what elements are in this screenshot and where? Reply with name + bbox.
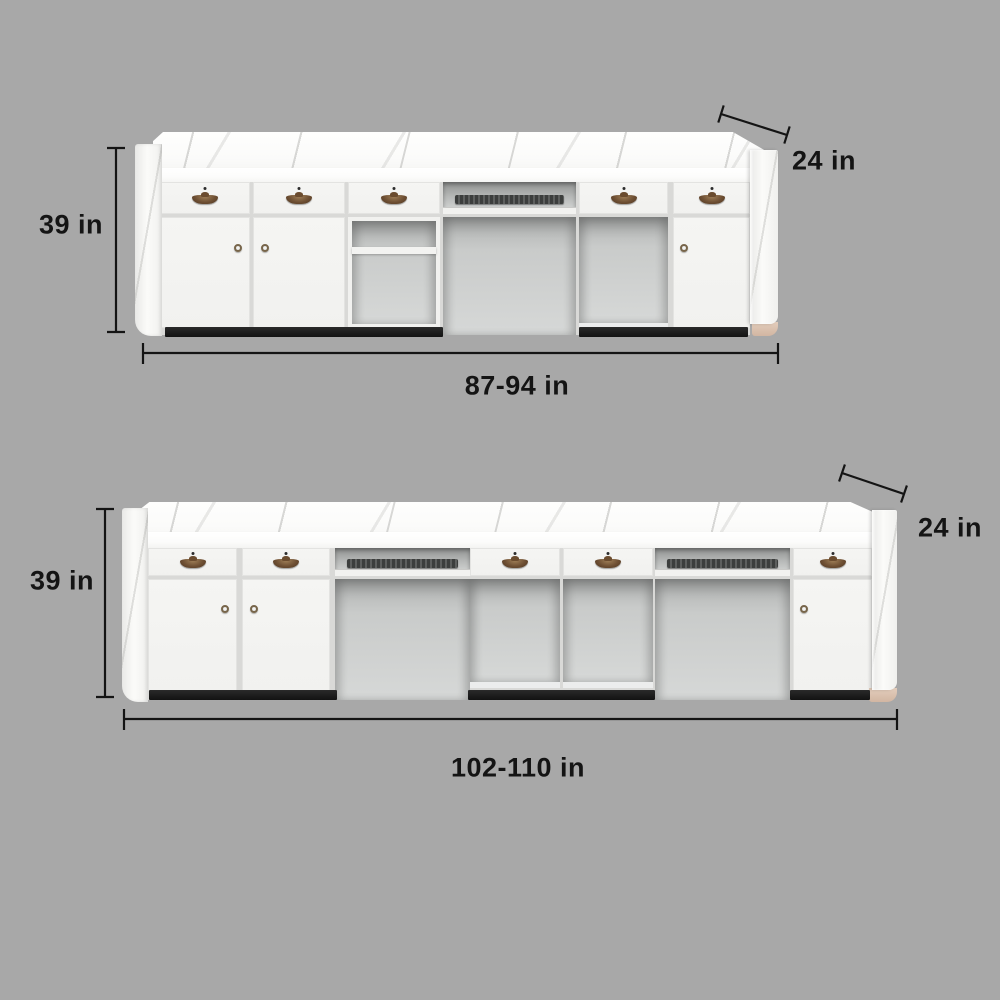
toe-kick <box>579 327 748 337</box>
drawer <box>563 548 653 576</box>
drawer <box>148 548 237 576</box>
reception-desk-large <box>122 500 912 710</box>
left-end-panel <box>122 508 148 702</box>
depth-label-small-desk: 24 in <box>792 146 856 177</box>
drawer-handle <box>192 195 218 204</box>
keyhole <box>285 552 288 555</box>
knee-space <box>443 217 576 335</box>
drawer <box>470 548 560 576</box>
countertop-edge <box>138 532 878 548</box>
toe-kick <box>468 690 655 700</box>
cabinet-door <box>673 217 750 328</box>
door-knob <box>250 605 258 613</box>
drawer-handle <box>286 195 312 204</box>
drawer <box>793 548 872 576</box>
corner-foot <box>869 688 897 702</box>
cabinet-door <box>148 579 237 691</box>
drawer-handle <box>595 559 621 568</box>
drawer-handle <box>273 559 299 568</box>
keyhole <box>622 187 625 190</box>
drawer <box>253 182 345 214</box>
knee-space <box>655 579 790 700</box>
keyhole <box>393 187 396 190</box>
cabinet-door <box>160 217 250 328</box>
keyhole <box>298 187 301 190</box>
drawer-handle <box>820 559 846 568</box>
drawer-handle <box>381 195 407 204</box>
countertop-edge <box>149 168 755 183</box>
knee-space <box>335 579 470 700</box>
open-compartment <box>563 579 653 688</box>
toe-kick <box>165 327 443 337</box>
width-dimension-line-large-desk <box>124 709 897 730</box>
drawer-handle <box>502 559 528 568</box>
open-compartment <box>579 217 668 329</box>
drawer-handle <box>611 195 637 204</box>
door-knob <box>261 244 269 252</box>
keyboard <box>455 195 564 204</box>
width-dimension-line-small-desk <box>143 343 778 364</box>
reception-desk-small <box>135 130 780 342</box>
drawer <box>348 182 440 214</box>
door-knob <box>234 244 242 252</box>
cabinet-front <box>160 182 750 335</box>
door-knob <box>221 605 229 613</box>
drawer <box>242 548 330 576</box>
drawer <box>579 182 668 214</box>
corner-foot <box>752 322 778 336</box>
keyboard <box>667 559 778 568</box>
right-end-panel <box>750 150 778 324</box>
width-label-large-desk: 102-110 in <box>451 753 585 784</box>
depth-dimension-line-large-desk <box>839 465 907 503</box>
shelf <box>352 247 436 254</box>
keyhole <box>710 187 713 190</box>
keyhole <box>514 552 517 555</box>
toe-kick <box>149 690 337 700</box>
width-label-small-desk: 87-94 in <box>465 371 570 402</box>
height-label-small-desk: 39 in <box>39 210 103 241</box>
drawer <box>160 182 250 214</box>
cabinet-door <box>253 217 345 328</box>
right-end-panel <box>872 510 897 690</box>
open-compartment <box>470 579 560 688</box>
left-end-panel <box>135 144 162 336</box>
tray-lip <box>655 569 790 576</box>
keyboard-tray <box>655 548 790 576</box>
door-knob <box>680 244 688 252</box>
tray-lip <box>443 207 576 214</box>
open-shelf-unit <box>348 217 440 328</box>
keyboard-tray <box>443 182 576 214</box>
cabinet-door <box>793 579 872 691</box>
toe-kick <box>790 690 870 700</box>
height-label-large-desk: 39 in <box>30 566 94 597</box>
cabinet-front <box>148 548 872 700</box>
depth-label-large-desk: 24 in <box>918 513 982 544</box>
height-dimension-line-large-desk <box>96 509 114 697</box>
drawer-handle <box>699 195 725 204</box>
cabinet-door <box>242 579 330 691</box>
tray-lip <box>335 569 470 576</box>
product-dimension-diagram: 39 in 24 in 87-94 in 39 in 24 in 102-110… <box>0 0 1000 1000</box>
keyboard <box>347 559 458 568</box>
keyhole <box>204 187 207 190</box>
keyboard-tray <box>335 548 470 576</box>
keyhole <box>831 552 834 555</box>
door-knob <box>800 605 808 613</box>
drawer <box>673 182 750 214</box>
keyhole <box>191 552 194 555</box>
drawer-handle <box>180 559 206 568</box>
height-dimension-line-small-desk <box>107 148 125 332</box>
keyhole <box>607 552 610 555</box>
